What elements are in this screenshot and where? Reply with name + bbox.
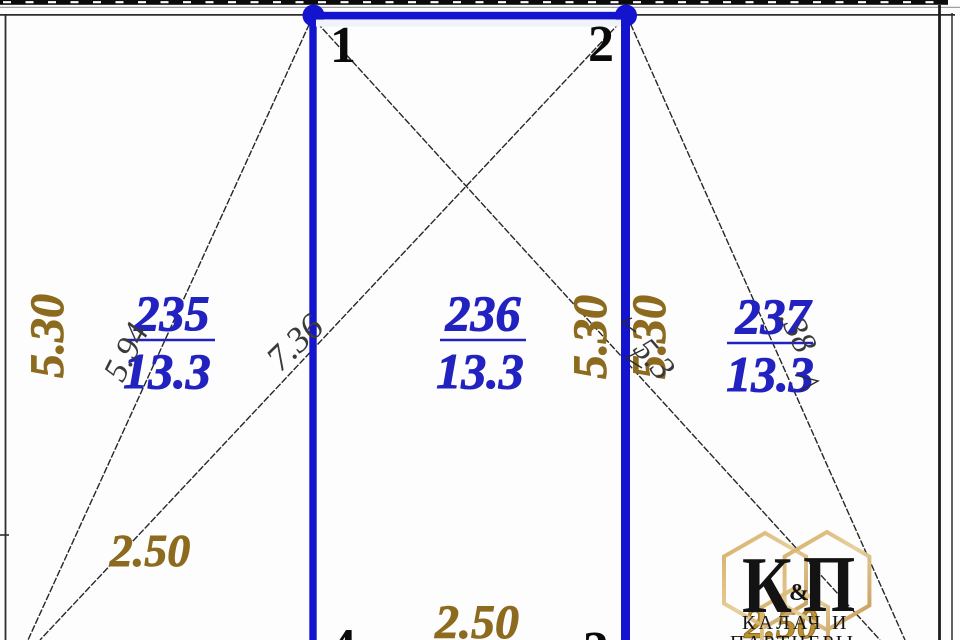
svg-text:13.3: 13.3 (726, 346, 814, 402)
svg-text:4: 4 (330, 619, 356, 640)
svg-text:5.30: 5.30 (564, 295, 617, 379)
svg-text:3: 3 (583, 622, 609, 640)
svg-text:5.30: 5.30 (21, 294, 74, 378)
svg-text:13.3: 13.3 (436, 343, 524, 399)
svg-text:ПАРТНЕРЫ: ПАРТНЕРЫ (730, 632, 855, 640)
svg-text:КАЛАЧ И: КАЛАЧ И (742, 612, 850, 634)
svg-text:236: 236 (445, 285, 521, 341)
svg-text:1: 1 (330, 17, 356, 74)
svg-text:2: 2 (588, 16, 614, 73)
svg-text:2.50: 2.50 (109, 525, 191, 576)
svg-text:2.50: 2.50 (434, 596, 519, 640)
